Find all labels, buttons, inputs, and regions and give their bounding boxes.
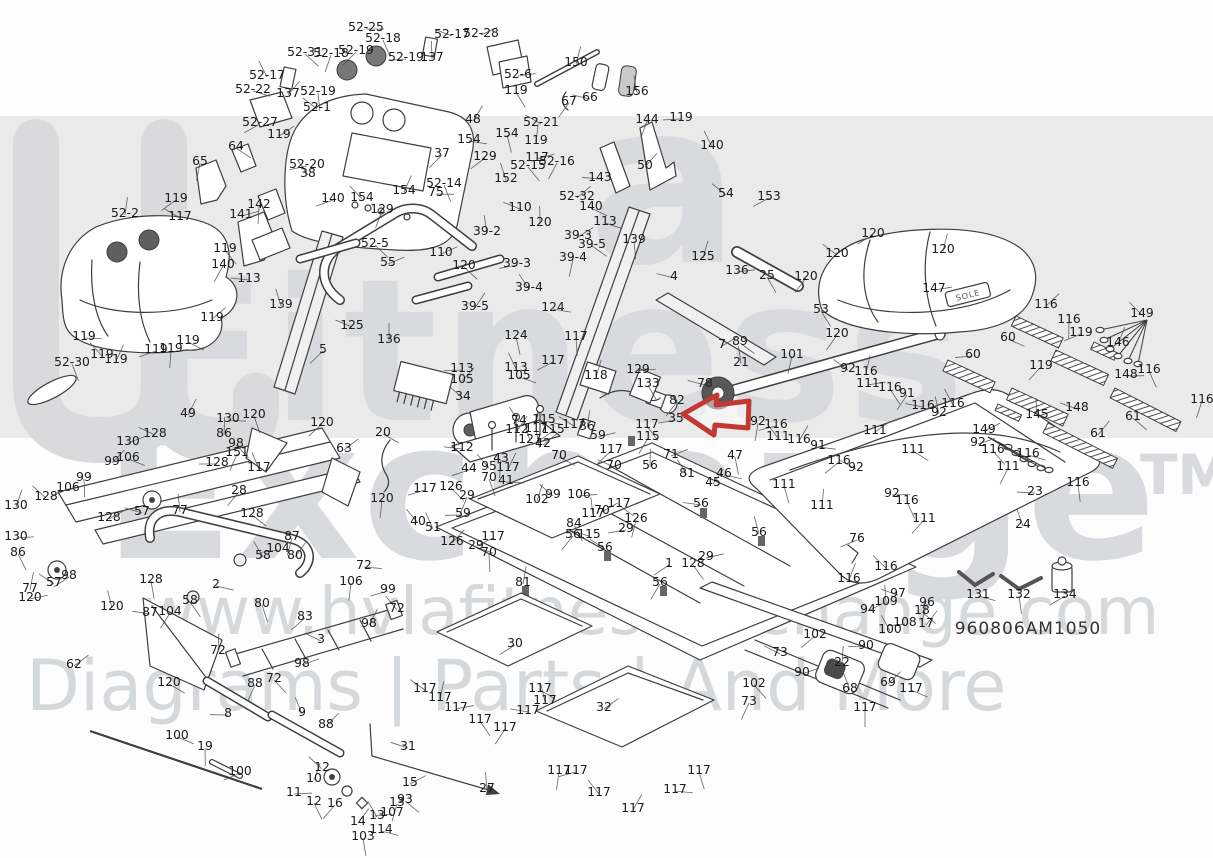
part-label: 117 xyxy=(493,720,516,734)
exploded-parts-diagram: a Fitness Exchange TM www.hvlafitnessexc… xyxy=(0,0,1213,858)
part-label: 4 xyxy=(670,269,678,283)
part-label: 23 xyxy=(1027,484,1043,498)
part-label: 119 xyxy=(144,342,167,356)
part-label: 56 xyxy=(693,496,709,510)
part-label: 120 xyxy=(528,215,551,229)
part-label: 100 xyxy=(228,764,251,778)
part-label: 119 xyxy=(1029,358,1052,372)
part-label: 71 xyxy=(663,447,679,461)
part-label: 5 xyxy=(319,342,327,356)
part-label: 49 xyxy=(180,406,196,420)
watermark-tm: TM xyxy=(1140,443,1213,507)
part-label: 120 xyxy=(861,226,884,240)
part-label: 90 xyxy=(794,665,810,679)
part-label: 78 xyxy=(697,376,713,390)
part-label: 39-4 xyxy=(559,250,587,264)
part-label: 66 xyxy=(582,90,598,104)
part-label: 117 xyxy=(587,785,610,799)
part-label: 60 xyxy=(1000,330,1016,344)
part-label: 117 xyxy=(496,460,519,474)
part-label: 128 xyxy=(34,489,57,503)
part-label: 37 xyxy=(434,146,450,160)
part-label: 44 xyxy=(461,461,477,475)
part-label: 143 xyxy=(588,170,611,184)
part-label: 28 xyxy=(231,483,247,497)
part-label: 106 xyxy=(116,450,140,464)
part-label: 117 xyxy=(168,209,191,223)
part-label: 70 xyxy=(481,545,497,559)
part-label: 119 xyxy=(669,110,692,124)
part-label: 106 xyxy=(339,574,363,588)
part-label: 128 xyxy=(139,572,162,586)
part-label: 156 xyxy=(625,84,649,98)
part-label: 120 xyxy=(825,326,848,340)
part-label: 148 xyxy=(1114,367,1137,381)
part-label: 91 xyxy=(810,438,826,452)
part-label: 139 xyxy=(622,232,645,246)
part-label: 119 xyxy=(504,83,527,97)
part-label: 129 xyxy=(626,362,649,376)
part-label: 77 xyxy=(172,503,188,517)
part-label: 51 xyxy=(425,520,441,534)
part-label: 147 xyxy=(922,281,945,295)
part-label: 140 xyxy=(579,199,602,213)
part-label: 31 xyxy=(400,739,416,753)
part-label: 20 xyxy=(375,425,391,439)
part-label: 9 xyxy=(298,705,306,719)
part-label: 128 xyxy=(240,506,263,520)
part-label: 72 xyxy=(266,671,282,685)
part-label: 2 xyxy=(212,577,220,591)
part-label: 106 xyxy=(56,480,80,494)
part-label: 130 xyxy=(4,529,27,543)
part-label: 117 xyxy=(599,442,622,456)
part-label: 39-5 xyxy=(461,299,489,313)
part-label: 106 xyxy=(567,487,591,501)
part-label: 136 xyxy=(725,263,749,277)
part-label: 110 xyxy=(508,200,531,214)
part-label: 102 xyxy=(525,492,548,506)
part-label: 133 xyxy=(636,376,659,390)
part-label: 101 xyxy=(780,347,803,361)
part-label: 111 xyxy=(766,429,789,443)
part-label: 87 xyxy=(142,605,158,619)
part-label: 25 xyxy=(759,268,775,282)
part-label: 59 xyxy=(455,506,471,520)
part-label: 73 xyxy=(772,645,788,659)
part-label: 117 xyxy=(468,712,491,726)
part-label: 62 xyxy=(66,657,82,671)
part-label: 61 xyxy=(1090,426,1106,440)
part-label: 130 xyxy=(4,498,27,512)
part-label: 52-18 xyxy=(313,46,349,60)
part-label: 146 xyxy=(1106,335,1130,349)
part-label: 70 xyxy=(481,470,497,484)
part-label: 83 xyxy=(297,609,313,623)
part-label: 41 xyxy=(498,473,514,487)
part-label: 111 xyxy=(901,442,924,456)
part-label: 81 xyxy=(679,466,695,480)
part-label: 76 xyxy=(849,531,865,545)
part-label: 13 xyxy=(369,808,385,822)
part-label: 120 xyxy=(157,675,180,689)
part-label: 140 xyxy=(211,257,234,271)
diagram-code: 960806AM1050 xyxy=(955,619,1101,639)
part-label: 14 xyxy=(350,814,366,828)
part-label: 39-5 xyxy=(578,237,606,251)
part-label: 140 xyxy=(321,191,344,205)
part-label: 80 xyxy=(287,548,303,562)
part-label: 7 xyxy=(718,337,726,351)
part-label: 52-14 xyxy=(426,176,462,190)
part-label: 34 xyxy=(455,389,471,403)
part-label: 60 xyxy=(965,347,981,361)
part-label: 117 xyxy=(444,700,467,714)
part-label: 32 xyxy=(596,700,612,714)
part-label: 48 xyxy=(465,112,481,126)
part-label: 29 xyxy=(618,521,634,535)
part-label: 15 xyxy=(402,775,418,789)
part-label: 98 xyxy=(294,656,310,670)
part-label: 17 xyxy=(918,616,934,630)
part-label: 52-16 xyxy=(539,154,575,168)
part-label: 56 xyxy=(751,525,767,539)
part-label: 115 xyxy=(541,422,564,436)
part-label: 117 xyxy=(564,329,587,343)
part-label: 149 xyxy=(972,422,995,436)
part-label: 52-19 xyxy=(300,84,336,98)
part-label: 52-6 xyxy=(504,67,532,81)
part-label: 98 xyxy=(361,616,377,630)
part-label: 117 xyxy=(533,693,556,707)
part-label: 86 xyxy=(10,545,26,559)
part-label: 70 xyxy=(606,458,622,472)
part-label: 72 xyxy=(210,643,226,657)
part-label: 119 xyxy=(164,191,187,205)
part-label: 19 xyxy=(197,739,213,753)
part-label: 120 xyxy=(825,246,848,260)
part-label: 120 xyxy=(18,590,41,604)
part-label: 131 xyxy=(966,587,989,601)
part-label: 105 xyxy=(507,368,530,382)
part-label: 115 xyxy=(577,527,600,541)
part-label: 38 xyxy=(300,166,316,180)
part-label: 70 xyxy=(551,448,567,462)
part-label: 125 xyxy=(691,249,714,263)
part-label: 88 xyxy=(247,676,263,690)
part-label: 116 xyxy=(981,442,1005,456)
part-label: 52-2 xyxy=(111,206,139,220)
part-label: 57 xyxy=(134,504,150,518)
part-label: 128 xyxy=(205,455,228,469)
part-label: 145 xyxy=(1025,407,1048,421)
part-label: 102 xyxy=(742,676,765,690)
part-label: 50 xyxy=(637,158,653,172)
part-label: 24 xyxy=(1015,517,1031,531)
part-label: 52-21 xyxy=(523,115,559,129)
part-label: 124 xyxy=(504,328,528,342)
part-label: 111 xyxy=(996,459,1019,473)
part-label: 21 xyxy=(733,355,749,369)
part-label: 47 xyxy=(727,448,743,462)
part-label: 117 xyxy=(621,801,644,815)
part-label: 125 xyxy=(340,318,363,332)
part-label: 53 xyxy=(813,302,829,316)
part-label: 144 xyxy=(635,112,659,126)
part-label: 88 xyxy=(318,717,334,731)
part-label: 52-5 xyxy=(361,236,389,250)
part-label: 137 xyxy=(276,86,299,100)
part-label: 67 xyxy=(561,94,577,108)
part-label: 56 xyxy=(652,575,668,589)
part-label: 120 xyxy=(794,269,817,283)
part-label: 111 xyxy=(772,477,795,491)
part-label: 119 xyxy=(213,241,236,255)
part-label: 64 xyxy=(228,139,244,153)
part-label: 92 xyxy=(848,460,864,474)
part-label: 118 xyxy=(584,368,607,382)
part-label: 130 xyxy=(216,411,239,425)
part-label: 141 xyxy=(229,207,252,221)
part-label: 150 xyxy=(564,55,587,69)
part-label: 116 xyxy=(941,396,965,410)
part-label: 16 xyxy=(327,796,343,810)
part-label: 126 xyxy=(440,534,464,548)
part-label: 140 xyxy=(700,138,723,152)
part-label: 99 xyxy=(380,582,396,596)
part-label: 117 xyxy=(607,496,630,510)
part-label: 58 xyxy=(255,548,271,562)
part-label: 100 xyxy=(878,622,901,636)
part-label: 117 xyxy=(853,700,876,714)
part-label: 116 xyxy=(1034,297,1058,311)
part-label: 119 xyxy=(1069,325,1092,339)
part-label: 59 xyxy=(590,428,606,442)
part-label: 8 xyxy=(224,706,232,720)
part-label: 119 xyxy=(524,133,547,147)
part-label: 119 xyxy=(200,310,223,324)
part-label: 98 xyxy=(61,568,77,582)
part-label: 111 xyxy=(912,511,935,525)
part-label: 139 xyxy=(269,297,292,311)
part-label: 154 xyxy=(495,126,519,140)
part-label: 116 xyxy=(837,571,861,585)
part-label: 111 xyxy=(810,498,833,512)
part-label: 110 xyxy=(429,245,452,259)
part-label: 120 xyxy=(370,491,393,505)
part-label: 117 xyxy=(663,782,686,796)
part-label: 68 xyxy=(842,681,858,695)
part-label: 81 xyxy=(515,575,531,589)
part-label: 117 xyxy=(528,681,551,695)
part-label: 39-3 xyxy=(503,256,531,270)
part-label: 80 xyxy=(254,596,270,610)
part-label: 63 xyxy=(336,441,352,455)
part-label: 72 xyxy=(356,558,372,572)
part-label: 117 xyxy=(481,529,504,543)
part-label: 56 xyxy=(597,540,613,554)
part-label: 116 xyxy=(874,559,898,573)
part-label: 136 xyxy=(377,332,401,346)
part-label: 94 xyxy=(860,602,876,616)
part-label: 90 xyxy=(858,638,874,652)
part-label: 152 xyxy=(494,171,517,185)
part-label: 96 xyxy=(919,595,935,609)
part-label: 115 xyxy=(636,429,659,443)
part-label: 65 xyxy=(192,154,208,168)
part-label: 117 xyxy=(247,460,270,474)
part-label: 116 xyxy=(787,432,811,446)
part-label: 120 xyxy=(100,599,123,613)
part-label: 52-28 xyxy=(463,26,499,40)
part-label: 40 xyxy=(410,514,426,528)
part-label: 119 xyxy=(267,127,290,141)
part-label: 105 xyxy=(450,372,473,386)
part-label: 116 xyxy=(1137,362,1161,376)
part-label: 117 xyxy=(413,481,436,495)
part-label: 69 xyxy=(880,675,896,689)
part-label: 10 xyxy=(306,771,322,785)
part-label: 116 xyxy=(1057,312,1081,326)
part-label: 117 xyxy=(899,681,922,695)
part-label: 103 xyxy=(351,829,374,843)
part-label: 117 xyxy=(541,353,564,367)
part-label: 153 xyxy=(757,189,780,203)
part-label: 46 xyxy=(716,466,732,480)
part-label: 128 xyxy=(97,510,120,524)
part-label: 52-19 xyxy=(388,50,424,64)
part-label: 61 xyxy=(1125,409,1141,423)
part-label: 22 xyxy=(834,655,850,669)
part-label: 134 xyxy=(1053,587,1077,601)
part-label: 129 xyxy=(473,149,496,163)
part-label: 120 xyxy=(931,242,954,256)
part-label: 52-22 xyxy=(235,82,271,96)
part-label: 128 xyxy=(143,426,166,440)
part-label: 129 xyxy=(370,202,393,216)
part-label: 72 xyxy=(389,601,405,615)
part-label: 116 xyxy=(1016,446,1040,460)
part-label: 130 xyxy=(116,434,139,448)
part-label: 119 xyxy=(104,352,127,366)
part-label: 120 xyxy=(242,407,265,421)
part-label: 29 xyxy=(459,488,475,502)
part-label: 3 xyxy=(317,632,325,646)
part-label: 154 xyxy=(392,183,416,197)
part-label: 120 xyxy=(452,258,475,272)
part-label: 132 xyxy=(1007,587,1030,601)
part-label: 54 xyxy=(718,186,734,200)
part-label: 42 xyxy=(535,436,551,450)
part-label: 116 xyxy=(1190,392,1213,406)
part-label: 52-1 xyxy=(303,100,331,114)
part-label: 27 xyxy=(479,781,495,795)
part-label: 82 xyxy=(669,393,685,407)
part-label: 104 xyxy=(158,604,182,618)
part-label: 151 xyxy=(225,445,248,459)
part-label: 39-4 xyxy=(515,280,543,294)
part-label: 109 xyxy=(874,594,897,608)
part-label: 149 xyxy=(1130,306,1153,320)
part-label: 117 xyxy=(687,763,710,777)
part-label: 100 xyxy=(165,728,188,742)
part-label: 113 xyxy=(593,214,616,228)
part-label: 112 xyxy=(450,440,473,454)
part-label: 1 xyxy=(665,556,673,570)
part-label: 39-2 xyxy=(473,224,501,238)
part-label: 116 xyxy=(1066,475,1090,489)
part-label: 102 xyxy=(803,627,826,641)
part-label: 117 xyxy=(564,763,587,777)
part-label: 55 xyxy=(380,255,396,269)
part-label: 120 xyxy=(310,415,333,429)
part-label: 116 xyxy=(895,493,919,507)
part-label: 148 xyxy=(1065,400,1088,414)
part-label: 124 xyxy=(541,300,565,314)
part-label: 111 xyxy=(856,376,879,390)
part-label: 89 xyxy=(732,334,748,348)
part-label: 11 xyxy=(286,785,302,799)
part-label: 119 xyxy=(72,329,95,343)
part-label: 56 xyxy=(642,458,658,472)
part-label: 154 xyxy=(457,132,481,146)
part-label: 52-30 xyxy=(54,355,90,369)
part-label: 57 xyxy=(46,575,62,589)
part-label: 111 xyxy=(863,423,886,437)
part-label: 58 xyxy=(182,593,198,607)
part-label: 30 xyxy=(507,636,523,650)
part-label: 12 xyxy=(306,794,322,808)
part-label: 52-17 xyxy=(249,68,285,82)
parts-diagram-page: a Fitness Exchange TM www.hvlafitnessexc… xyxy=(0,0,1213,858)
part-label: 128 xyxy=(681,556,704,570)
part-label: 113 xyxy=(237,271,260,285)
part-label: 73 xyxy=(741,694,757,708)
